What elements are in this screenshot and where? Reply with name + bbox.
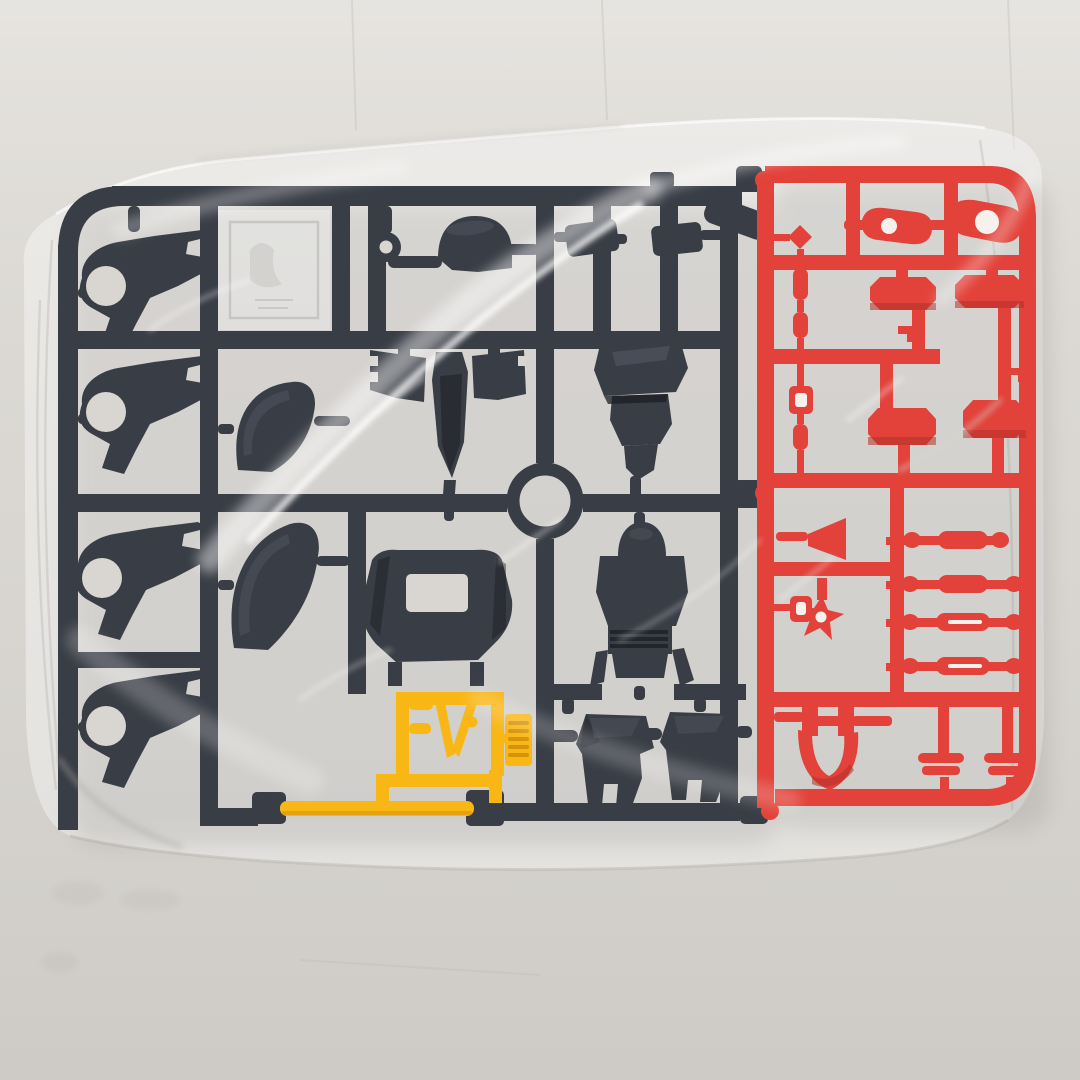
name-plate bbox=[218, 210, 330, 330]
photo-stage bbox=[0, 0, 1080, 1080]
sprue-photo bbox=[0, 0, 1080, 1080]
box-part-2 bbox=[651, 221, 704, 256]
